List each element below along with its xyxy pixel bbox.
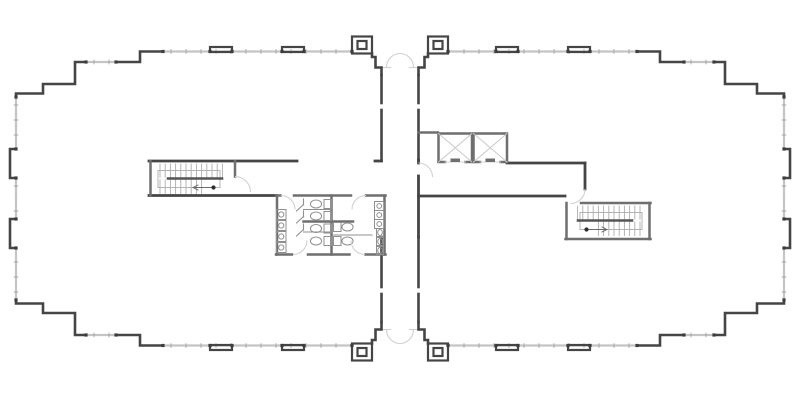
wall-node bbox=[208, 344, 211, 347]
wall-node bbox=[682, 60, 685, 63]
wall-node bbox=[782, 298, 785, 301]
sink-basin bbox=[279, 223, 284, 228]
wall-node bbox=[14, 217, 17, 220]
sink-basin bbox=[377, 213, 382, 218]
exterior-wall bbox=[637, 335, 684, 346]
sink-basin bbox=[279, 245, 284, 250]
facade-pier bbox=[428, 344, 448, 361]
building-shell bbox=[10, 37, 790, 361]
stair-core-left bbox=[158, 164, 222, 194]
exterior-wall bbox=[10, 219, 16, 248]
wall-node bbox=[350, 344, 353, 347]
toilet-tank bbox=[334, 223, 342, 232]
exterior-wall bbox=[784, 149, 790, 178]
wall-node bbox=[84, 60, 87, 63]
sink bbox=[375, 220, 385, 229]
door-swing-arc bbox=[419, 163, 433, 177]
facade-pier bbox=[568, 47, 590, 52]
exterior-wall bbox=[714, 300, 784, 335]
sink-basin bbox=[377, 204, 382, 209]
toilet-bowl bbox=[310, 237, 321, 245]
exterior-wall bbox=[714, 62, 784, 97]
shell-quadrant bbox=[400, 199, 790, 361]
exterior-wall bbox=[372, 54, 382, 76]
entry-door-arc bbox=[400, 54, 414, 68]
facade-pier bbox=[210, 345, 232, 350]
wall-node bbox=[782, 147, 785, 150]
wall-node bbox=[782, 176, 785, 179]
elevator-door-slab bbox=[451, 159, 461, 163]
wall-node bbox=[230, 344, 233, 347]
exterior-wall bbox=[116, 335, 163, 346]
wall-node bbox=[84, 333, 87, 336]
sink bbox=[375, 202, 385, 211]
stair-core-right bbox=[578, 206, 642, 236]
facade-pier bbox=[358, 41, 367, 49]
wall-node bbox=[635, 50, 638, 53]
wall-node bbox=[446, 344, 449, 347]
shell-quadrant bbox=[400, 37, 790, 199]
exterior-wall bbox=[637, 52, 684, 63]
toilet-bowl bbox=[310, 225, 321, 233]
facade-pier bbox=[568, 345, 590, 350]
wall-node bbox=[114, 60, 117, 63]
door-swing-arcs bbox=[235, 163, 585, 255]
toilet-bowl bbox=[310, 212, 321, 220]
wall-node bbox=[114, 333, 117, 336]
partition-wall bbox=[297, 230, 304, 237]
wall-node bbox=[302, 344, 305, 347]
facade-pier bbox=[282, 47, 304, 52]
elevator-bank bbox=[439, 134, 508, 163]
door-swing-arc bbox=[293, 241, 307, 255]
exterior-wall bbox=[372, 322, 382, 344]
wall-node bbox=[14, 95, 17, 98]
wall-node bbox=[566, 50, 569, 53]
wall-node bbox=[302, 50, 305, 53]
facade-pier bbox=[428, 37, 448, 54]
wall-node bbox=[566, 344, 569, 347]
exterior-wall bbox=[16, 62, 86, 97]
wall-node bbox=[161, 50, 164, 53]
shell-quadrant bbox=[10, 37, 400, 199]
entry-door-arc bbox=[387, 54, 401, 68]
stair-direction-dot bbox=[584, 227, 588, 231]
facade-pier bbox=[352, 344, 372, 361]
wall-node bbox=[14, 246, 17, 249]
facade-pier bbox=[496, 47, 518, 52]
wall-node bbox=[516, 50, 519, 53]
wall-node bbox=[208, 50, 211, 53]
wall-node bbox=[782, 217, 785, 220]
wall-node bbox=[161, 344, 164, 347]
exterior-wall bbox=[419, 322, 429, 344]
facade-pier bbox=[358, 348, 367, 356]
wall-node bbox=[682, 333, 685, 336]
floor-plan-image bbox=[0, 0, 800, 400]
entry-door-arc bbox=[387, 330, 401, 344]
facade-pier bbox=[434, 348, 443, 356]
wall-node bbox=[14, 176, 17, 179]
wall-node bbox=[635, 344, 638, 347]
door-swing-arc bbox=[235, 177, 251, 193]
exterior-wall bbox=[419, 54, 429, 76]
floor-plan-canvas bbox=[0, 0, 800, 400]
toilet-bowl bbox=[342, 223, 353, 231]
wall-node bbox=[588, 344, 591, 347]
stair-direction-dot bbox=[211, 185, 215, 189]
wall-node bbox=[280, 50, 283, 53]
interior-walls bbox=[149, 133, 651, 255]
partition-wall bbox=[297, 205, 304, 212]
wall-node bbox=[712, 60, 715, 63]
facade-pier bbox=[210, 47, 232, 52]
wall-node bbox=[588, 50, 591, 53]
door-swing-arc bbox=[281, 196, 295, 210]
wall-node bbox=[230, 50, 233, 53]
facade-pier bbox=[352, 37, 372, 54]
exterior-wall bbox=[784, 219, 790, 248]
wall-node bbox=[280, 344, 283, 347]
wall-node bbox=[494, 50, 497, 53]
wall-node bbox=[712, 333, 715, 336]
urinal-bowl bbox=[378, 230, 383, 236]
sink bbox=[375, 211, 385, 220]
wall-node bbox=[14, 298, 17, 301]
wall-node bbox=[494, 344, 497, 347]
wall-node bbox=[516, 344, 519, 347]
wall-node bbox=[782, 95, 785, 98]
facade-pier bbox=[496, 345, 518, 350]
entry-door-arc bbox=[400, 330, 414, 344]
toilet-bowl bbox=[310, 200, 321, 208]
sink-basin bbox=[377, 222, 382, 227]
wall-node bbox=[14, 147, 17, 150]
wall-node bbox=[782, 246, 785, 249]
facade-pier bbox=[282, 345, 304, 350]
door-swing-arc bbox=[571, 189, 586, 204]
facade-pier bbox=[434, 41, 443, 49]
sink-basin bbox=[279, 234, 284, 239]
sink-basin bbox=[279, 212, 284, 217]
exterior-wall bbox=[10, 149, 16, 178]
exterior-wall bbox=[116, 52, 163, 63]
wall-node bbox=[446, 50, 449, 53]
exterior-wall bbox=[16, 300, 86, 335]
wall-node bbox=[350, 50, 353, 53]
door-swing-arc bbox=[352, 196, 366, 210]
elevator-door-slab bbox=[486, 159, 496, 163]
toilet-tank bbox=[334, 237, 342, 246]
